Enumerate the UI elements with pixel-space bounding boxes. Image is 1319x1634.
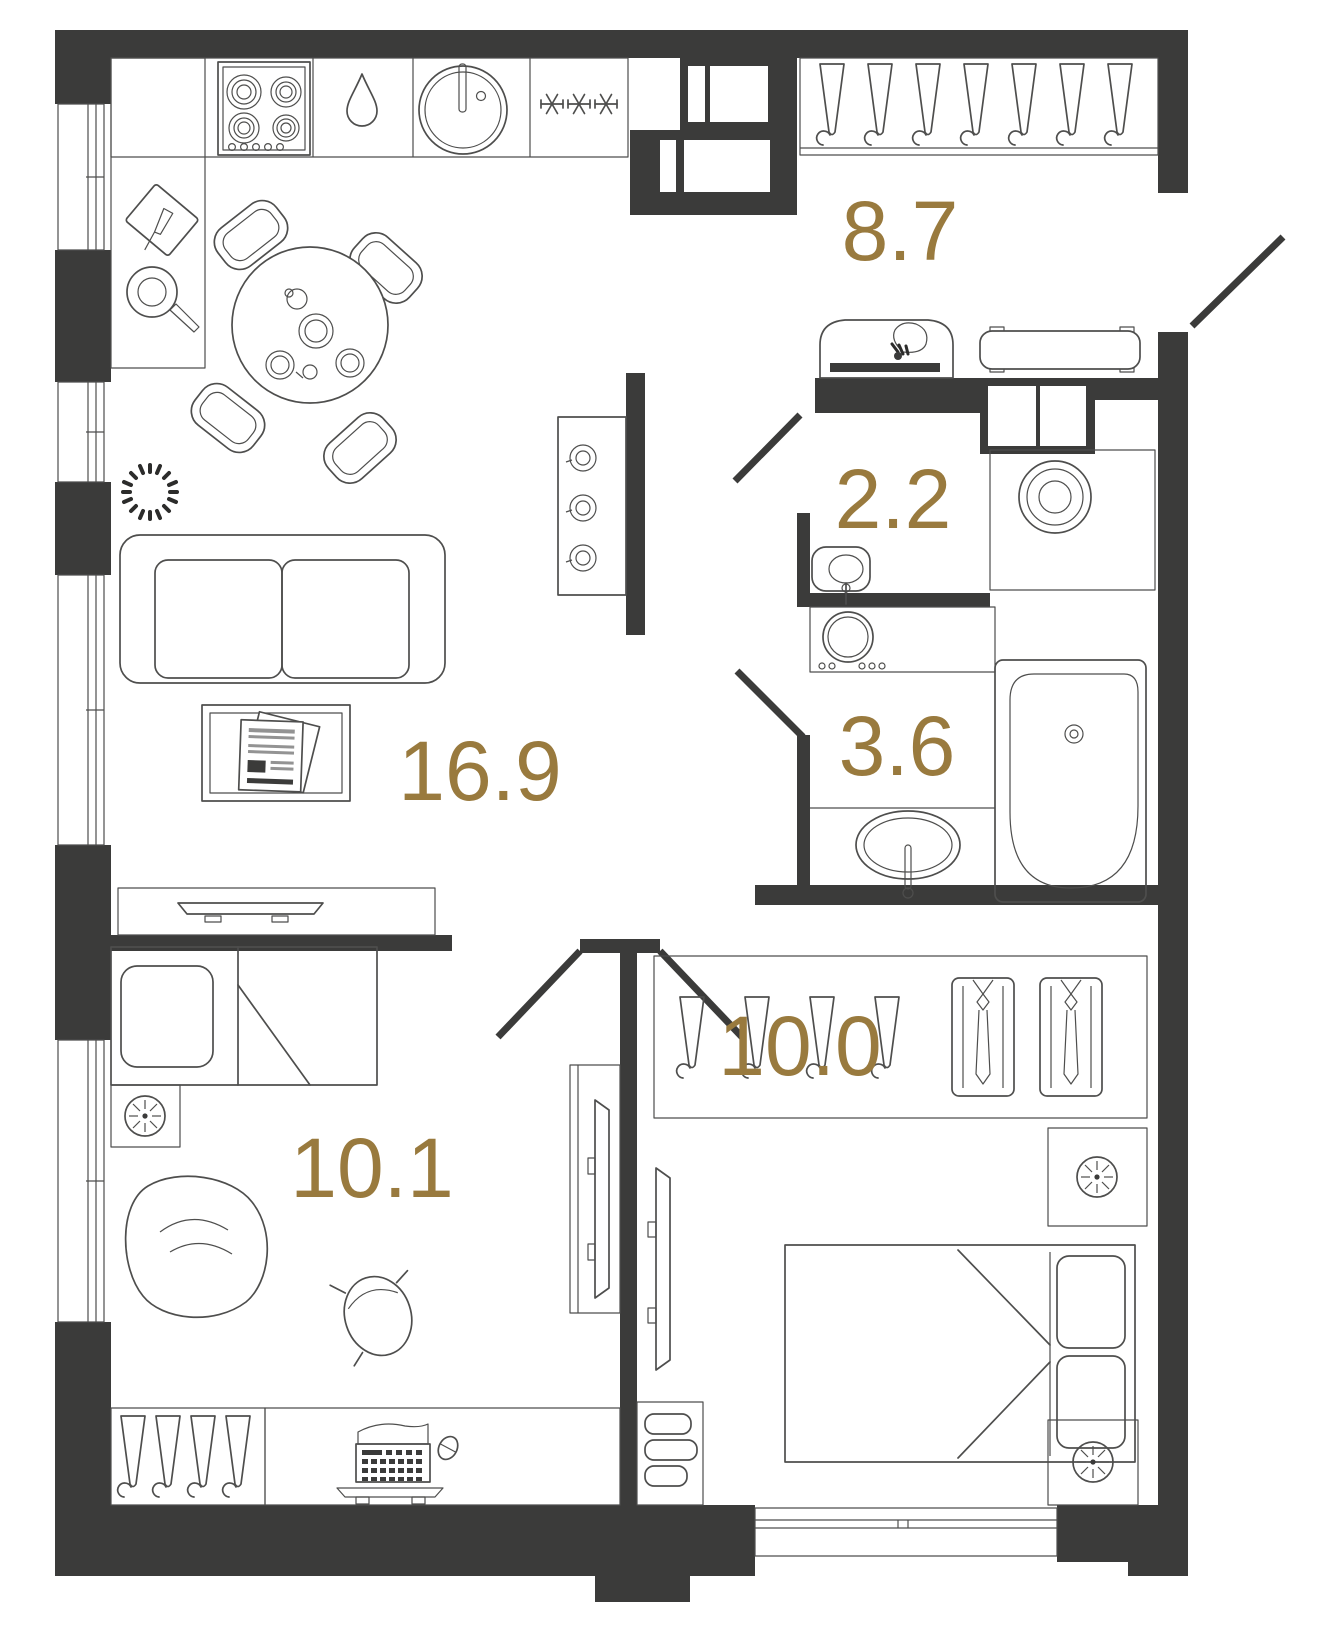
window — [58, 575, 104, 845]
hanger-icon — [1009, 64, 1036, 145]
hanger-icon — [1057, 64, 1084, 145]
bath-sink — [810, 808, 995, 898]
cutting-board-icon — [119, 184, 199, 264]
windows — [58, 104, 1057, 1556]
hob-icon — [218, 62, 310, 155]
tv-icon — [588, 1100, 609, 1298]
dining-table — [232, 247, 388, 403]
room-wardrobe — [111, 1408, 265, 1505]
drawer-unit — [637, 1402, 703, 1505]
tv-icon — [178, 903, 323, 922]
entrance-door-leaf — [1192, 237, 1283, 326]
snowflakes-icon — [541, 95, 617, 114]
hall-wardrobe — [800, 58, 1158, 155]
media-shelf — [558, 417, 626, 595]
hanger-icon — [865, 64, 892, 145]
dining-set — [184, 193, 429, 490]
floor-plan-drawing: 16.9 8.7 2.2 3.6 10.0 10.1 — [0, 0, 1319, 1634]
drop-icon — [347, 74, 377, 126]
frying-pan-icon — [127, 267, 199, 332]
desk-chair — [328, 1261, 430, 1366]
plant-pot-icon — [125, 1096, 165, 1136]
single-bed — [111, 947, 377, 1085]
tv-icon — [648, 1168, 670, 1370]
console-table — [820, 320, 953, 378]
hanger-icon — [118, 1416, 145, 1497]
plant-icon — [123, 465, 177, 519]
shirt-icon — [1040, 978, 1102, 1096]
label-hallway: 8.7 — [842, 184, 959, 278]
washing-machine-icon — [819, 612, 885, 669]
tray — [337, 1488, 443, 1504]
bedside-table — [1048, 1128, 1147, 1226]
label-wc: 2.2 — [835, 452, 952, 546]
bean-bag — [126, 1176, 268, 1317]
hanger-icon — [223, 1416, 250, 1497]
bedside-table — [111, 1085, 180, 1147]
tv-console — [118, 888, 435, 935]
hanger-icon — [188, 1416, 215, 1497]
desk — [265, 1408, 620, 1505]
hanger-icon — [677, 997, 704, 1078]
hanger-icon — [817, 64, 844, 145]
newspaper-icon — [234, 710, 321, 797]
chair — [316, 405, 403, 490]
hanger-icon — [153, 1416, 180, 1497]
hanger-icon — [913, 64, 940, 145]
round-sink-icon — [419, 64, 507, 154]
lamp-icon — [892, 323, 927, 360]
room-10-1 — [111, 947, 620, 1505]
bench — [980, 327, 1140, 372]
bedroom-window — [755, 1508, 1057, 1556]
walls — [55, 30, 1188, 1602]
window — [58, 382, 104, 482]
bathroom-door-leaf — [737, 671, 803, 737]
laptop-icon — [356, 1424, 430, 1482]
room-10-1-door-leaf — [498, 951, 580, 1037]
window — [58, 104, 104, 250]
water-heater-icon — [1019, 461, 1091, 533]
label-kids-room: 10.1 — [290, 1121, 454, 1215]
mouse-icon — [434, 1433, 461, 1463]
sofa — [120, 535, 445, 683]
plant-pot-icon — [1073, 1442, 1113, 1482]
plant-pot-icon — [1077, 1157, 1117, 1197]
label-bathroom: 3.6 — [839, 699, 956, 793]
living-area — [118, 417, 626, 935]
window — [58, 1040, 104, 1322]
double-bed — [785, 1245, 1135, 1462]
hanger-icon — [1105, 64, 1132, 145]
coffee-table — [202, 705, 350, 801]
wc-door-leaf — [735, 415, 800, 481]
floor-plan-page: 16.9 8.7 2.2 3.6 10.0 10.1 — [0, 0, 1319, 1634]
washer-counter — [810, 607, 995, 672]
wc-cabinet — [990, 450, 1155, 590]
bedroom-10-0 — [637, 956, 1147, 1505]
bathtub-icon — [995, 660, 1146, 902]
shirt-icon — [952, 978, 1014, 1096]
tv-cabinet — [570, 1065, 620, 1313]
label-bedroom: 10.0 — [718, 999, 882, 1093]
label-kitchen-living: 16.9 — [398, 724, 562, 818]
hanger-icon — [961, 64, 988, 145]
chair — [184, 376, 272, 459]
